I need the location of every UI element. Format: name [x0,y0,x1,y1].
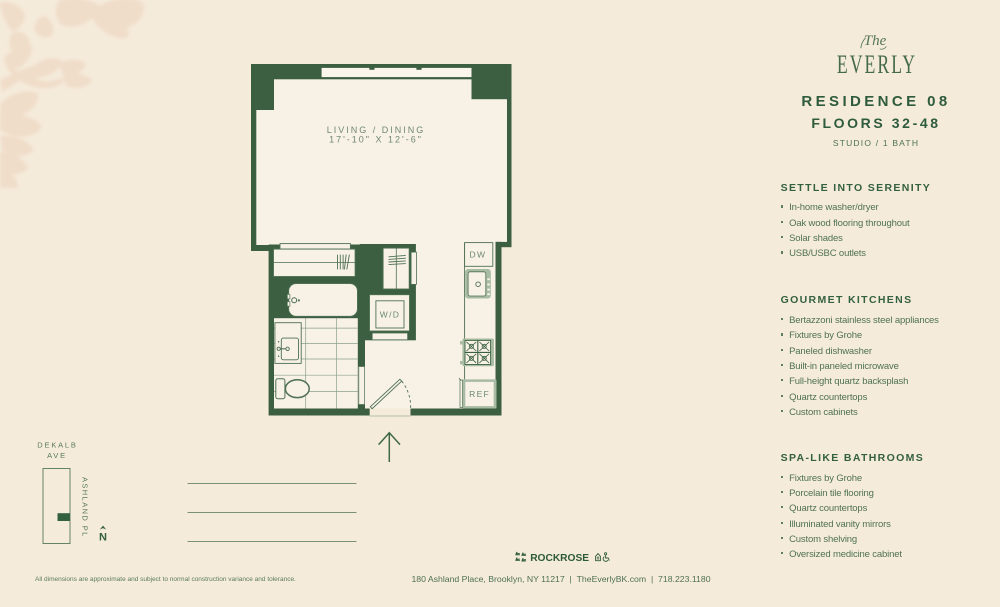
svg-text:ASHLAND PL: ASHLAND PL [81,477,90,538]
svg-text:REF: REF [469,389,490,399]
svg-text:AVE: AVE [47,451,67,460]
svg-text:DW: DW [470,250,487,260]
svg-text:DEKALB: DEKALB [37,441,77,450]
svg-text:ROCKROSE: ROCKROSE [530,553,589,564]
svg-text:N: N [99,532,107,544]
svg-text:W/D: W/D [380,310,400,320]
svg-text:17'-10" X 12'-6": 17'-10" X 12'-6" [329,135,423,145]
